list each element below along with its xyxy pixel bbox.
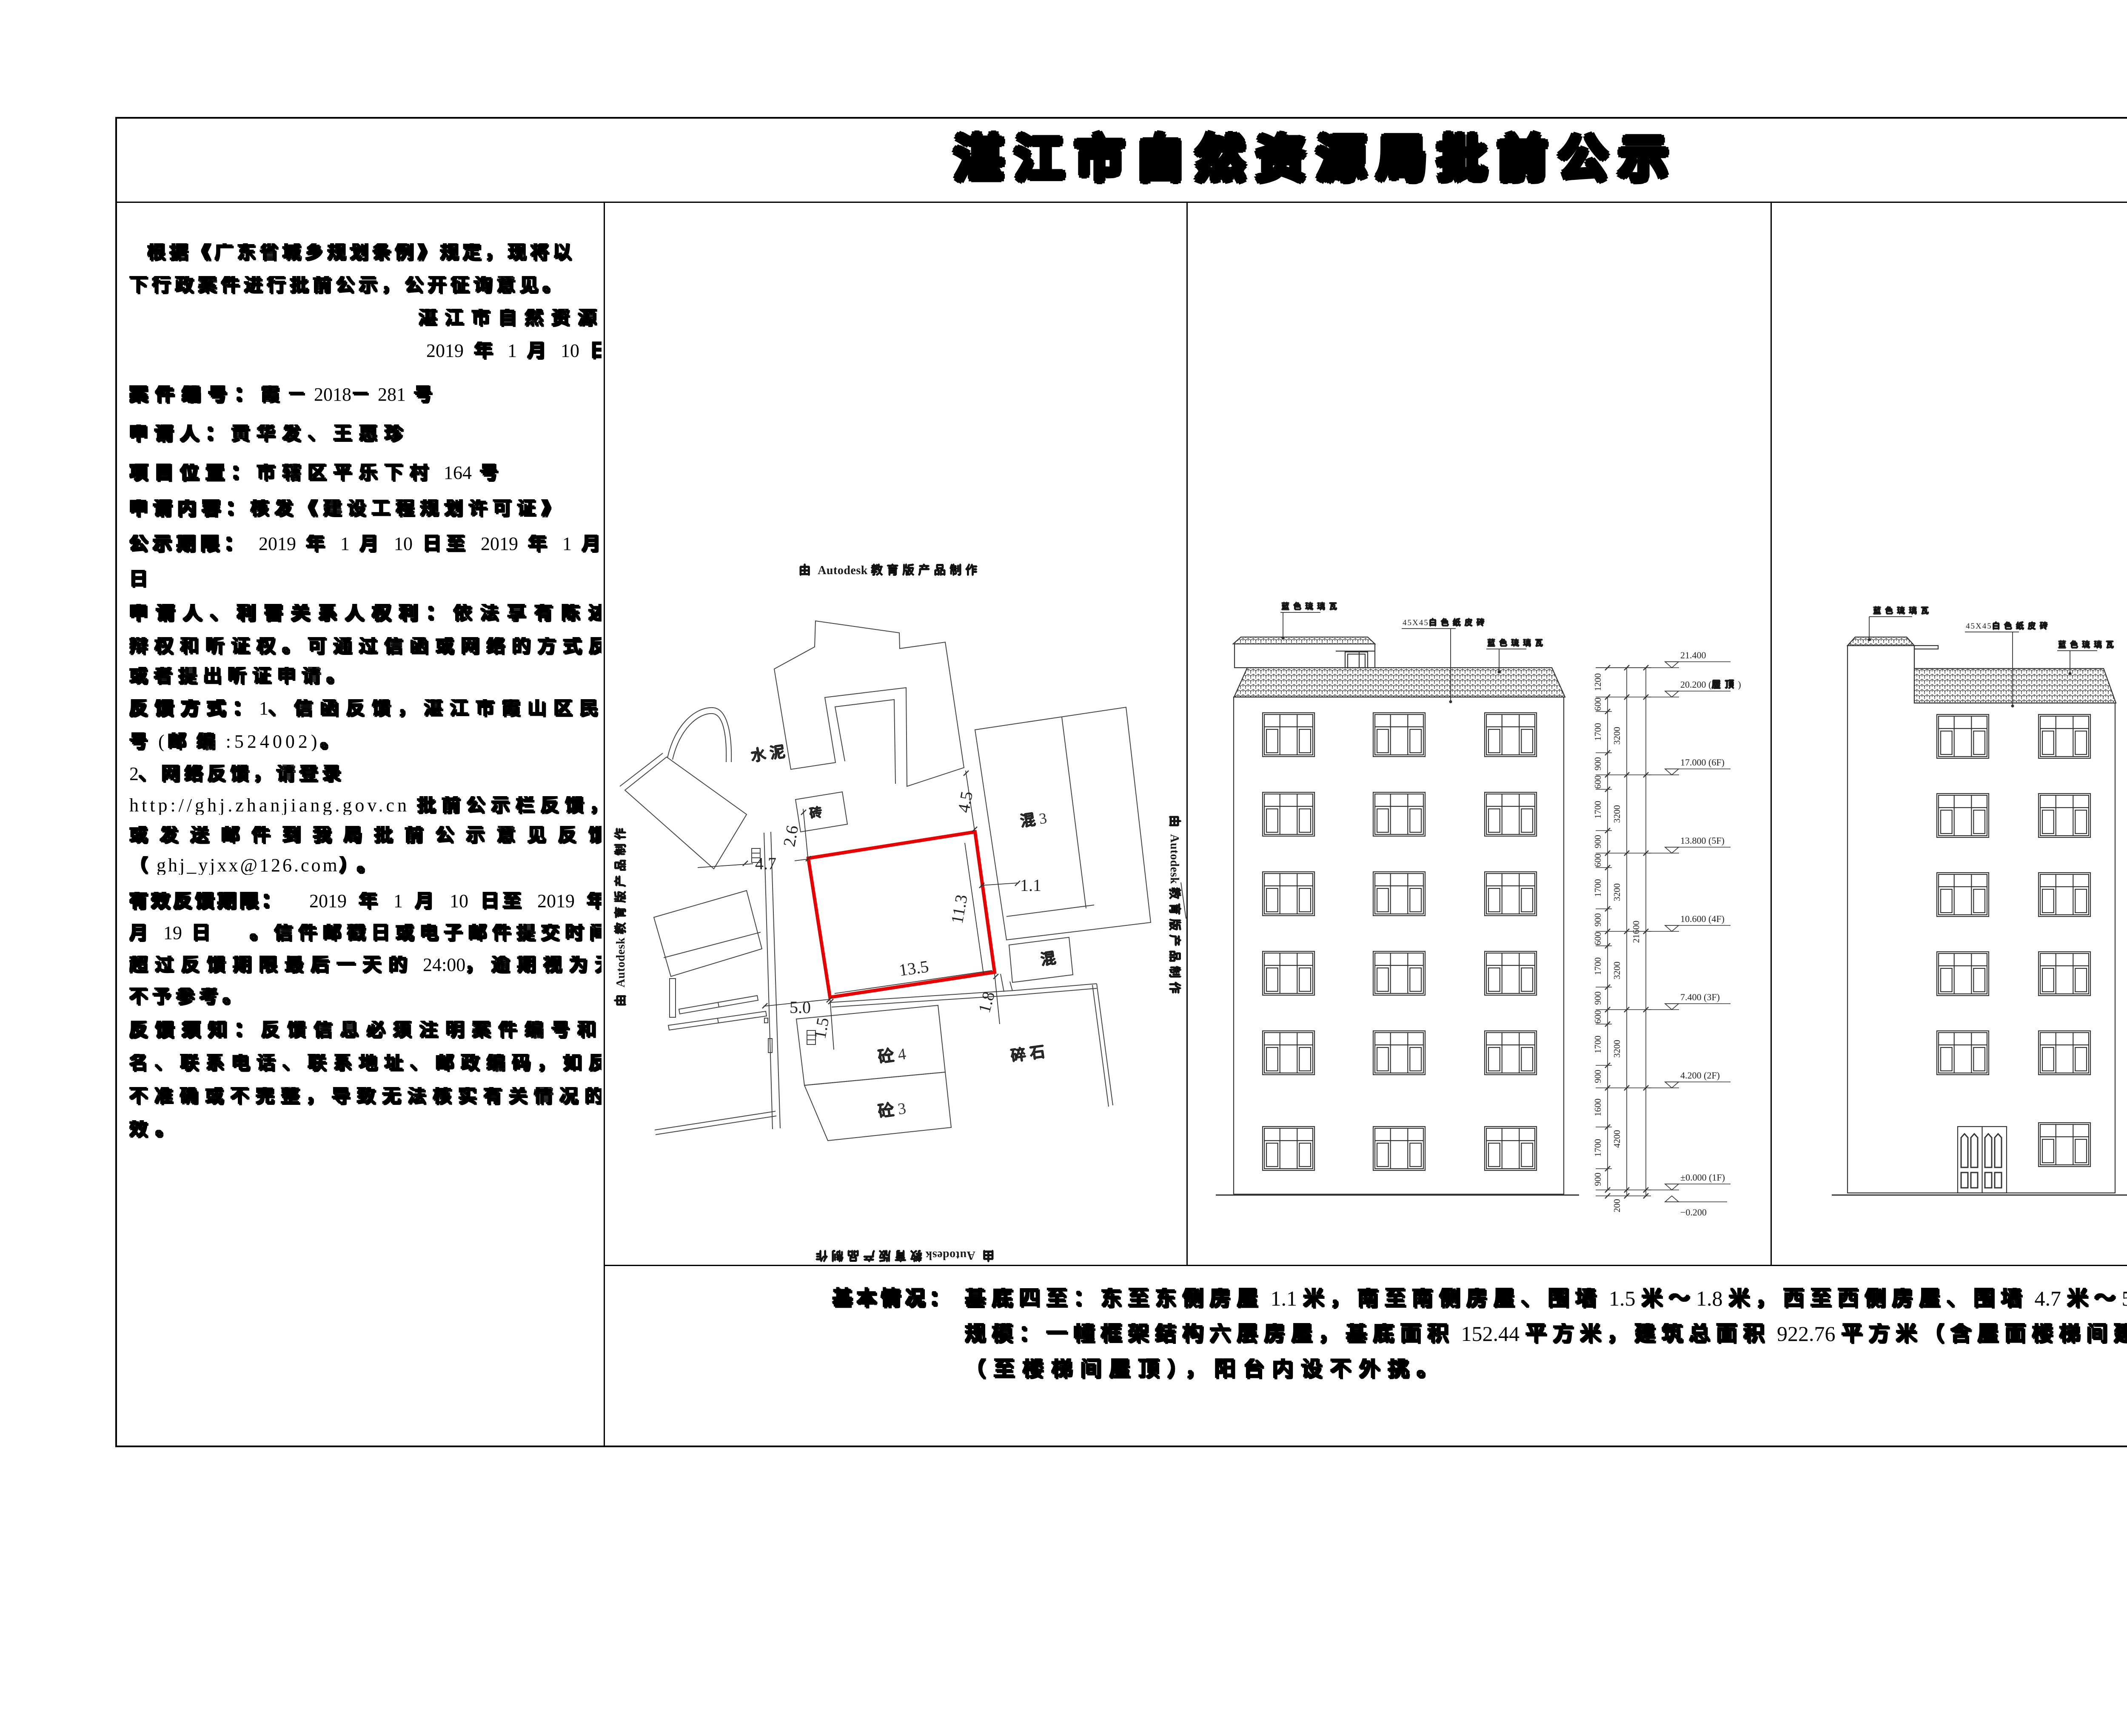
svg-text:1700: 1700	[1593, 957, 1603, 975]
svg-text:45X45白色纸皮砖: 45X45白色纸皮砖	[1966, 621, 2052, 631]
svg-text:600: 600	[1593, 697, 1603, 711]
svg-text:13.5: 13.5	[898, 956, 930, 979]
svg-text:10.600 (4F): 10.600 (4F)	[1680, 914, 1725, 924]
svg-text:200: 200	[1612, 1199, 1622, 1212]
svg-text:蓝色琉璃瓦: 蓝色琉璃瓦	[1873, 606, 1933, 615]
svg-text:900: 900	[1593, 835, 1603, 848]
svg-text:1700: 1700	[1593, 879, 1603, 897]
svg-text:7.400 (3F): 7.400 (3F)	[1680, 992, 1720, 1002]
svg-text:45X45白色纸皮砖: 45X45白色纸皮砖	[1403, 618, 1488, 627]
svg-text:1700: 1700	[1593, 1036, 1603, 1053]
svg-text:600: 600	[1593, 1010, 1603, 1024]
svg-text:由 Autodesk 教育版产品制作: 由 Autodesk 教育版产品制作	[799, 563, 981, 577]
svg-text:1200: 1200	[1593, 673, 1603, 691]
svg-text:600: 600	[1593, 854, 1603, 867]
svg-text:±0.000 (1F): ±0.000 (1F)	[1680, 1172, 1725, 1183]
svg-text:蓝色琉璃瓦: 蓝色琉璃瓦	[1487, 638, 1547, 648]
svg-text:3200: 3200	[1612, 883, 1622, 901]
svg-text:由 Autodesk 教育版产品制作: 由 Autodesk 教育版产品制作	[812, 1249, 995, 1262]
svg-text:1.5: 1.5	[810, 1016, 833, 1040]
svg-text:由 Autodesk 教育版产品制作: 由 Autodesk 教育版产品制作	[1168, 815, 1181, 998]
svg-text:4.5: 4.5	[954, 790, 976, 814]
svg-text:13.800 (5F): 13.800 (5F)	[1680, 835, 1725, 846]
svg-text:−0.200: −0.200	[1680, 1207, 1707, 1218]
svg-text:20.200 (屋顶): 20.200 (屋顶)	[1680, 679, 1741, 690]
svg-text:3200: 3200	[1612, 727, 1622, 745]
svg-text:11.3: 11.3	[947, 893, 971, 925]
svg-text:21.400: 21.400	[1680, 650, 1706, 660]
svg-text:600: 600	[1593, 932, 1603, 945]
svg-text:600: 600	[1593, 775, 1603, 789]
svg-text:砼4: 砼4	[877, 1044, 911, 1067]
svg-text:1700: 1700	[1593, 1139, 1603, 1157]
svg-text:5.0: 5.0	[790, 998, 811, 1017]
svg-text:900: 900	[1593, 1173, 1603, 1186]
svg-text:900: 900	[1593, 991, 1603, 1005]
svg-text:砼3: 砼3	[877, 1099, 911, 1121]
svg-text:3200: 3200	[1612, 962, 1622, 979]
svg-text:由 Autodesk 教育版产品制作: 由 Autodesk 教育版产品制作	[614, 824, 627, 1007]
svg-text:1600: 1600	[1593, 1099, 1603, 1116]
svg-text:2.6: 2.6	[779, 824, 802, 848]
svg-text:水泥: 水泥	[750, 742, 790, 765]
svg-text:4.7: 4.7	[755, 854, 776, 873]
svg-text:900: 900	[1593, 1070, 1603, 1083]
svg-text:21600: 21600	[1631, 921, 1641, 943]
svg-text:900: 900	[1593, 757, 1603, 771]
svg-text:3200: 3200	[1612, 1040, 1622, 1058]
svg-text:1.1: 1.1	[1020, 876, 1041, 895]
svg-text:碎石: 碎石	[1009, 1042, 1050, 1065]
svg-text:砖: 砖	[809, 805, 827, 821]
svg-text:3200: 3200	[1612, 805, 1622, 823]
svg-text:900: 900	[1593, 913, 1603, 927]
svg-text:混3: 混3	[1019, 808, 1052, 830]
svg-text:17.000 (6F): 17.000 (6F)	[1680, 757, 1725, 768]
svg-text:混: 混	[1039, 948, 1061, 968]
svg-text:蓝色琉璃瓦: 蓝色琉璃瓦	[2058, 640, 2118, 649]
svg-text:1700: 1700	[1593, 723, 1603, 741]
svg-text:4.200 (2F): 4.200 (2F)	[1680, 1070, 1720, 1081]
svg-text:蓝色琉璃瓦: 蓝色琉璃瓦	[1281, 602, 1341, 611]
svg-text:1700: 1700	[1593, 801, 1603, 819]
svg-text:4200: 4200	[1612, 1130, 1622, 1148]
